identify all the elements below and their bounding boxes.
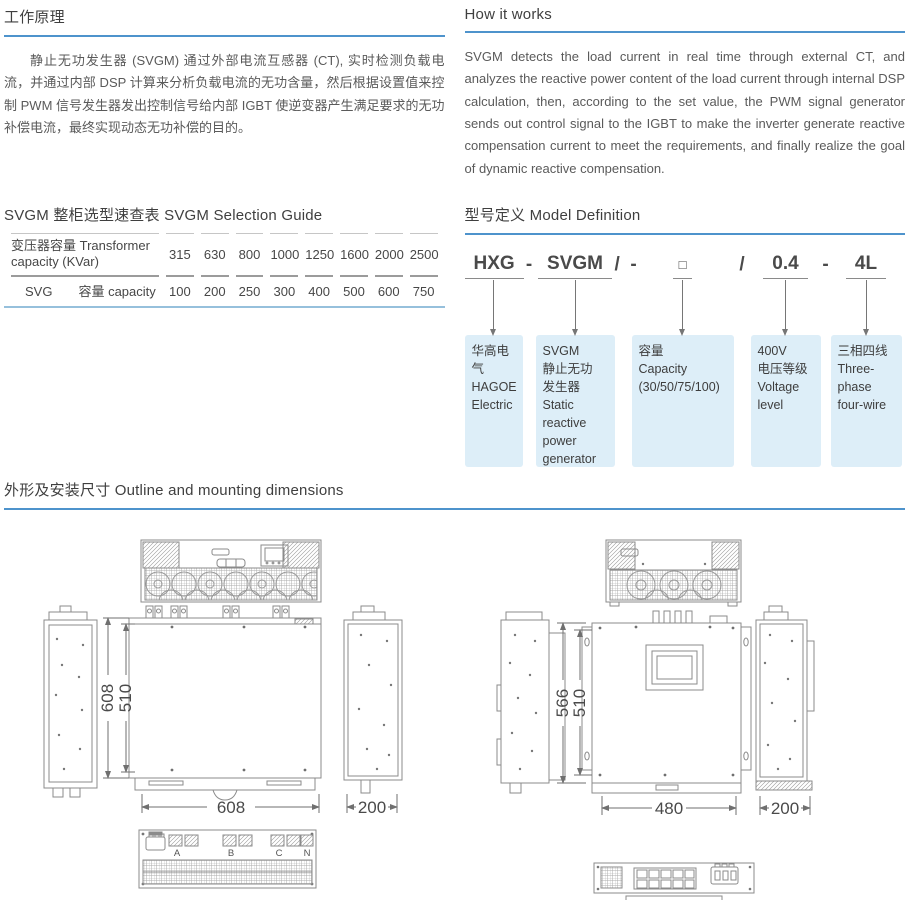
model-separator: - [821, 254, 831, 279]
dim-608-horizontal: 608 [217, 798, 245, 817]
model-part-code: SVGM [536, 253, 615, 279]
working-principle-body: 静止无功发生器 (SVGM) 通过外部电流互感器 (CT), 实时检测负载电流，… [4, 50, 445, 139]
down-arrow-icon [866, 280, 867, 332]
fig2-front-view [582, 611, 751, 793]
model-part-description: 华高电气 HAGOE Electric [465, 335, 523, 467]
dim-200-horizontal: 200 [771, 799, 799, 818]
figure-2: 566 510 480 200 图 2 480 模块尺寸图 Figure 2 4… [455, 523, 906, 900]
working-principle-rule [4, 35, 445, 37]
fig2-top-view [606, 540, 741, 614]
table-cell: 750 [410, 277, 438, 306]
model-separator: / - [615, 254, 632, 279]
row2-label-right: 容量 capacity [78, 284, 155, 300]
model-part-code: HXG [465, 253, 523, 279]
outline-rule [4, 508, 905, 510]
model-part-description: 容量 Capacity (30/50/75/100) [632, 335, 734, 467]
model-part-code: 4L [831, 253, 902, 279]
selection-guide-title: SVGM 整柜选型速查表 SVGM Selection Guide [4, 204, 445, 225]
outline-title: 外形及安装尺寸 Outline and mounting dimensions [4, 479, 905, 500]
selection-guide-column: SVGM 整柜选型速查表 SVGM Selection Guide 变压器容量 … [4, 204, 445, 467]
model-part-description: 三相四线 Three- phase four-wire [831, 335, 902, 467]
terminal-label-c: C [276, 848, 283, 859]
datasheet-page: 工作原理 静止无功发生器 (SVGM) 通过外部电流互感器 (CT), 实时检测… [0, 0, 912, 900]
dim-200-horizontal: 200 [358, 798, 386, 817]
table-cell: 1000 [270, 233, 298, 277]
table-cell: 2000 [375, 233, 403, 277]
terminal-label-a: A [174, 848, 181, 859]
working-principle-title: 工作原理 [4, 6, 445, 27]
selection-guide-table: 变压器容量 Transformer capacity (KVar) 315 63… [4, 233, 445, 308]
intro-section: 工作原理 静止无功发生器 (SVGM) 通过外部电流互感器 (CT), 实时检测… [4, 6, 905, 180]
table-row: 变压器容量 Transformer capacity (KVar) 315 63… [11, 233, 438, 277]
fig1-right-side-view [344, 606, 402, 793]
table-cell: 300 [270, 277, 298, 306]
down-arrow-icon [682, 280, 683, 332]
table-cell: 400 [305, 277, 333, 306]
how-it-works-column: How it works SVGM detects the load curre… [465, 6, 906, 180]
dim-510-vertical: 510 [570, 689, 589, 717]
table-cell: 315 [166, 233, 194, 277]
model-definition-title: 型号定义 Model Definition [465, 204, 906, 225]
row2-label: SVG容量 capacity [11, 277, 159, 306]
how-it-works-rule [465, 31, 906, 33]
working-principle-column: 工作原理 静止无功发生器 (SVGM) 通过外部电流互感器 (CT), 实时检测… [4, 6, 445, 180]
model-separator: - [523, 254, 536, 279]
fig1-rear-view [139, 830, 316, 888]
fig2-right-side-view [756, 606, 814, 790]
model-definition-rule [465, 233, 906, 235]
table-cell: 630 [201, 233, 229, 277]
down-arrow-icon [493, 280, 494, 332]
table-cell: 500 [340, 277, 368, 306]
table-cell: 1250 [305, 233, 333, 277]
down-arrow-icon [575, 280, 576, 332]
fig1-top-view [129, 606, 321, 800]
table-cell: 600 [375, 277, 403, 306]
figure-1: A B C N 608 510 608 200 [4, 523, 455, 900]
down-arrow-icon [785, 280, 786, 332]
figure-1-drawing: A B C N 608 510 608 200 [9, 523, 449, 900]
dim-480-horizontal: 480 [655, 799, 683, 818]
model-part-code: 0.4 [751, 253, 821, 279]
dim-510-vertical: 510 [116, 684, 135, 712]
model-part-description: SVGM 静止无功 发生器 Static reactive power gene… [536, 335, 615, 467]
fig2-bottom-view [594, 863, 754, 900]
table-row: SVG容量 capacity 100 200 250 300 400 500 6… [11, 277, 438, 306]
how-it-works-title: How it works [465, 6, 906, 23]
fig1-dimensions [103, 618, 397, 813]
table-cell: 100 [166, 277, 194, 306]
fig1-left-side-view [44, 606, 97, 797]
row2-label-left: SVG [25, 284, 52, 300]
dim-608-vertical: 608 [98, 684, 117, 712]
how-it-works-body: SVGM detects the load current in real ti… [465, 46, 906, 180]
terminal-label-n: N [304, 848, 311, 859]
outline-section: 外形及安装尺寸 Outline and mounting dimensions [4, 479, 905, 510]
terminal-label-b: B [228, 848, 234, 859]
table-cell: 1600 [340, 233, 368, 277]
row1-label: 变压器容量 Transformer capacity (KVar) [11, 233, 159, 277]
table-cell: 800 [236, 233, 264, 277]
model-part-code: □ [632, 253, 734, 279]
table-cell: 200 [201, 277, 229, 306]
model-definition-diagram: HXG - SVGM / - □ / 0.4 - 4L 华高电气 HAGOE E… [465, 253, 906, 467]
model-separator: / [734, 254, 751, 279]
fig1-front-view [141, 540, 326, 614]
figures-section: A B C N 608 510 608 200 [4, 523, 905, 900]
table-cell: 2500 [410, 233, 438, 277]
model-part-description: 400V 电压等级 Voltage level [751, 335, 821, 467]
selection-model-section: SVGM 整柜选型速查表 SVGM Selection Guide 变压器容量 … [4, 204, 905, 467]
figure-2-drawing: 566 510 480 200 [460, 523, 900, 900]
model-definition-column: 型号定义 Model Definition HXG - SVGM / - □ /… [465, 204, 906, 467]
table-cell: 250 [236, 277, 264, 306]
